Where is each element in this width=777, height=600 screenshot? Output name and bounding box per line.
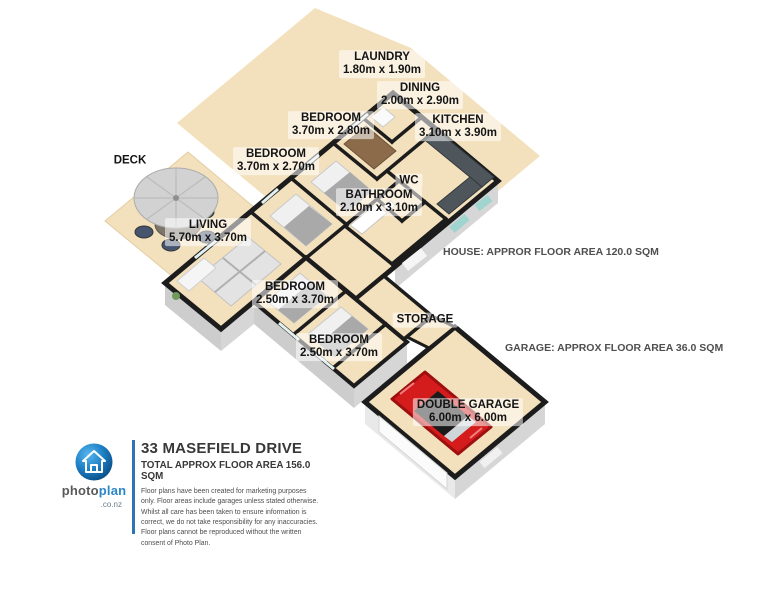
label-bedroom-wing-2: BEDROOM 2.50m x 3.70m xyxy=(296,333,382,361)
room-name: BEDROOM xyxy=(246,148,306,160)
total-area: TOTAL APPROX FLOOR AREA 156.0 SQM xyxy=(141,460,319,482)
room-dims: 2.10m x 3.10m xyxy=(340,202,418,215)
room-name: WC xyxy=(399,175,418,187)
label-laundry: LAUNDRY 1.80m x 1.90m xyxy=(339,50,425,78)
room-dims: 1.80m x 1.90m xyxy=(343,64,421,77)
room-name: STORAGE xyxy=(397,314,454,326)
label-living: LIVING 5.70m x 3.70m xyxy=(165,218,251,246)
room-dims: 2.50m x 3.70m xyxy=(256,294,334,307)
label-kitchen: KITCHEN 3.10m x 3.90m xyxy=(415,113,501,141)
room-name: DOUBLE GARAGE xyxy=(417,399,519,411)
label-bedroom-mid: BEDROOM 3.70m x 2.70m xyxy=(233,147,319,175)
room-name: BEDROOM xyxy=(265,281,325,293)
room-name: BEDROOM xyxy=(301,112,361,124)
label-storage: STORAGE xyxy=(393,313,458,328)
divider xyxy=(132,440,135,534)
room-dims: 3.70m x 2.80m xyxy=(292,125,370,138)
room-name: LAUNDRY xyxy=(354,51,410,63)
room-name: DINING xyxy=(400,82,440,94)
room-dims: 2.00m x 2.90m xyxy=(381,95,459,108)
garage-area-note: GARAGE: APPROX FLOOR AREA 36.0 SQM xyxy=(505,342,723,354)
brand-wordmark: photoplan xyxy=(62,483,127,498)
room-dims: 2.50m x 3.70m xyxy=(300,347,378,360)
room-name: DECK xyxy=(114,155,147,167)
address-title: 33 MASEFIELD DRIVE xyxy=(141,440,319,457)
label-double-garage: DOUBLE GARAGE 6.00m x 6.00m xyxy=(413,398,523,426)
label-bathroom: BATHROOM 2.10m x 3.10m xyxy=(336,188,422,216)
room-name: BATHROOM xyxy=(346,189,413,201)
house-area-note: HOUSE: APPROR FLOOR AREA 120.0 SQM xyxy=(443,246,659,258)
info-block: photoplan .co.nz 33 MASEFIELD DRIVE TOTA… xyxy=(60,440,320,540)
room-name: BEDROOM xyxy=(309,334,369,346)
room-dims: 5.70m x 3.70m xyxy=(169,232,247,245)
room-dims: 3.70m x 2.70m xyxy=(237,161,315,174)
room-name: LIVING xyxy=(189,219,227,231)
label-bedroom-top: BEDROOM 3.70m x 2.80m xyxy=(288,111,374,139)
room-name: KITCHEN xyxy=(432,114,483,126)
floorplan-page: LAUNDRY 1.80m x 1.90m DINING 2.00m x 2.9… xyxy=(0,0,777,600)
brand-suffix: .co.nz xyxy=(60,500,128,509)
photoplan-logo: photoplan .co.nz xyxy=(60,442,128,509)
label-wc: WC xyxy=(395,174,422,189)
label-bedroom-wing-1: BEDROOM 2.50m x 3.70m xyxy=(252,280,338,308)
label-dining: DINING 2.00m x 2.90m xyxy=(377,81,463,109)
disclaimer-text: Floor plans have been created for market… xyxy=(141,487,319,549)
room-dims: 6.00m x 6.00m xyxy=(417,412,519,425)
room-dims: 3.10m x 3.90m xyxy=(419,127,497,140)
house-icon xyxy=(74,442,114,482)
label-deck: DECK xyxy=(110,154,151,169)
